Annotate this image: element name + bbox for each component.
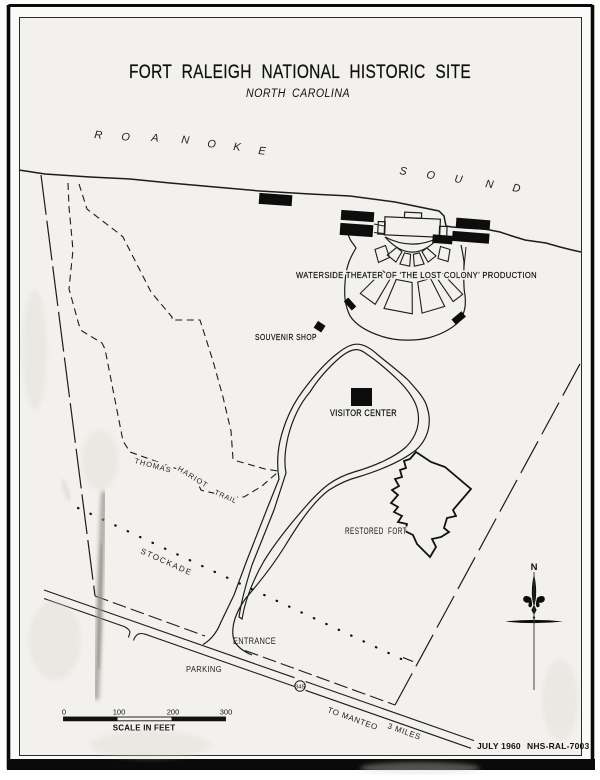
svg-text:RESTORED FORT: RESTORED FORT — [345, 526, 407, 536]
svg-text:R: R — [94, 129, 103, 142]
svg-text:PARKING: PARKING — [186, 664, 222, 674]
svg-text:JULY 1960: JULY 1960 — [477, 741, 521, 751]
svg-text:SOUVENIR SHOP: SOUVENIR SHOP — [255, 332, 317, 342]
svg-text:200: 200 — [167, 708, 180, 717]
svg-text:N: N — [181, 134, 190, 147]
svg-text:A: A — [150, 132, 160, 145]
svg-text:NHS-RAL-7003: NHS-RAL-7003 — [527, 741, 589, 751]
svg-text:O: O — [121, 131, 131, 144]
svg-text:300: 300 — [220, 708, 233, 717]
svg-text:NORTH CAROLINA: NORTH CAROLINA — [246, 88, 350, 100]
svg-text:100: 100 — [113, 708, 126, 717]
svg-text:N: N — [531, 562, 538, 573]
svg-text:VISITOR CENTER: VISITOR CENTER — [330, 408, 397, 419]
svg-text:ENTRANCE: ENTRANCE — [233, 636, 276, 646]
svg-text:345: 345 — [295, 684, 305, 690]
svg-text:WATERSIDE THEATER OF ‘THE LOST: WATERSIDE THEATER OF ‘THE LOST COLONY’ P… — [296, 270, 537, 280]
svg-text:FORT RALEIGH NATIONAL HISTORIC: FORT RALEIGH NATIONAL HISTORIC SITE — [129, 61, 471, 83]
svg-text:O: O — [207, 138, 217, 151]
svg-text:0: 0 — [62, 708, 66, 717]
